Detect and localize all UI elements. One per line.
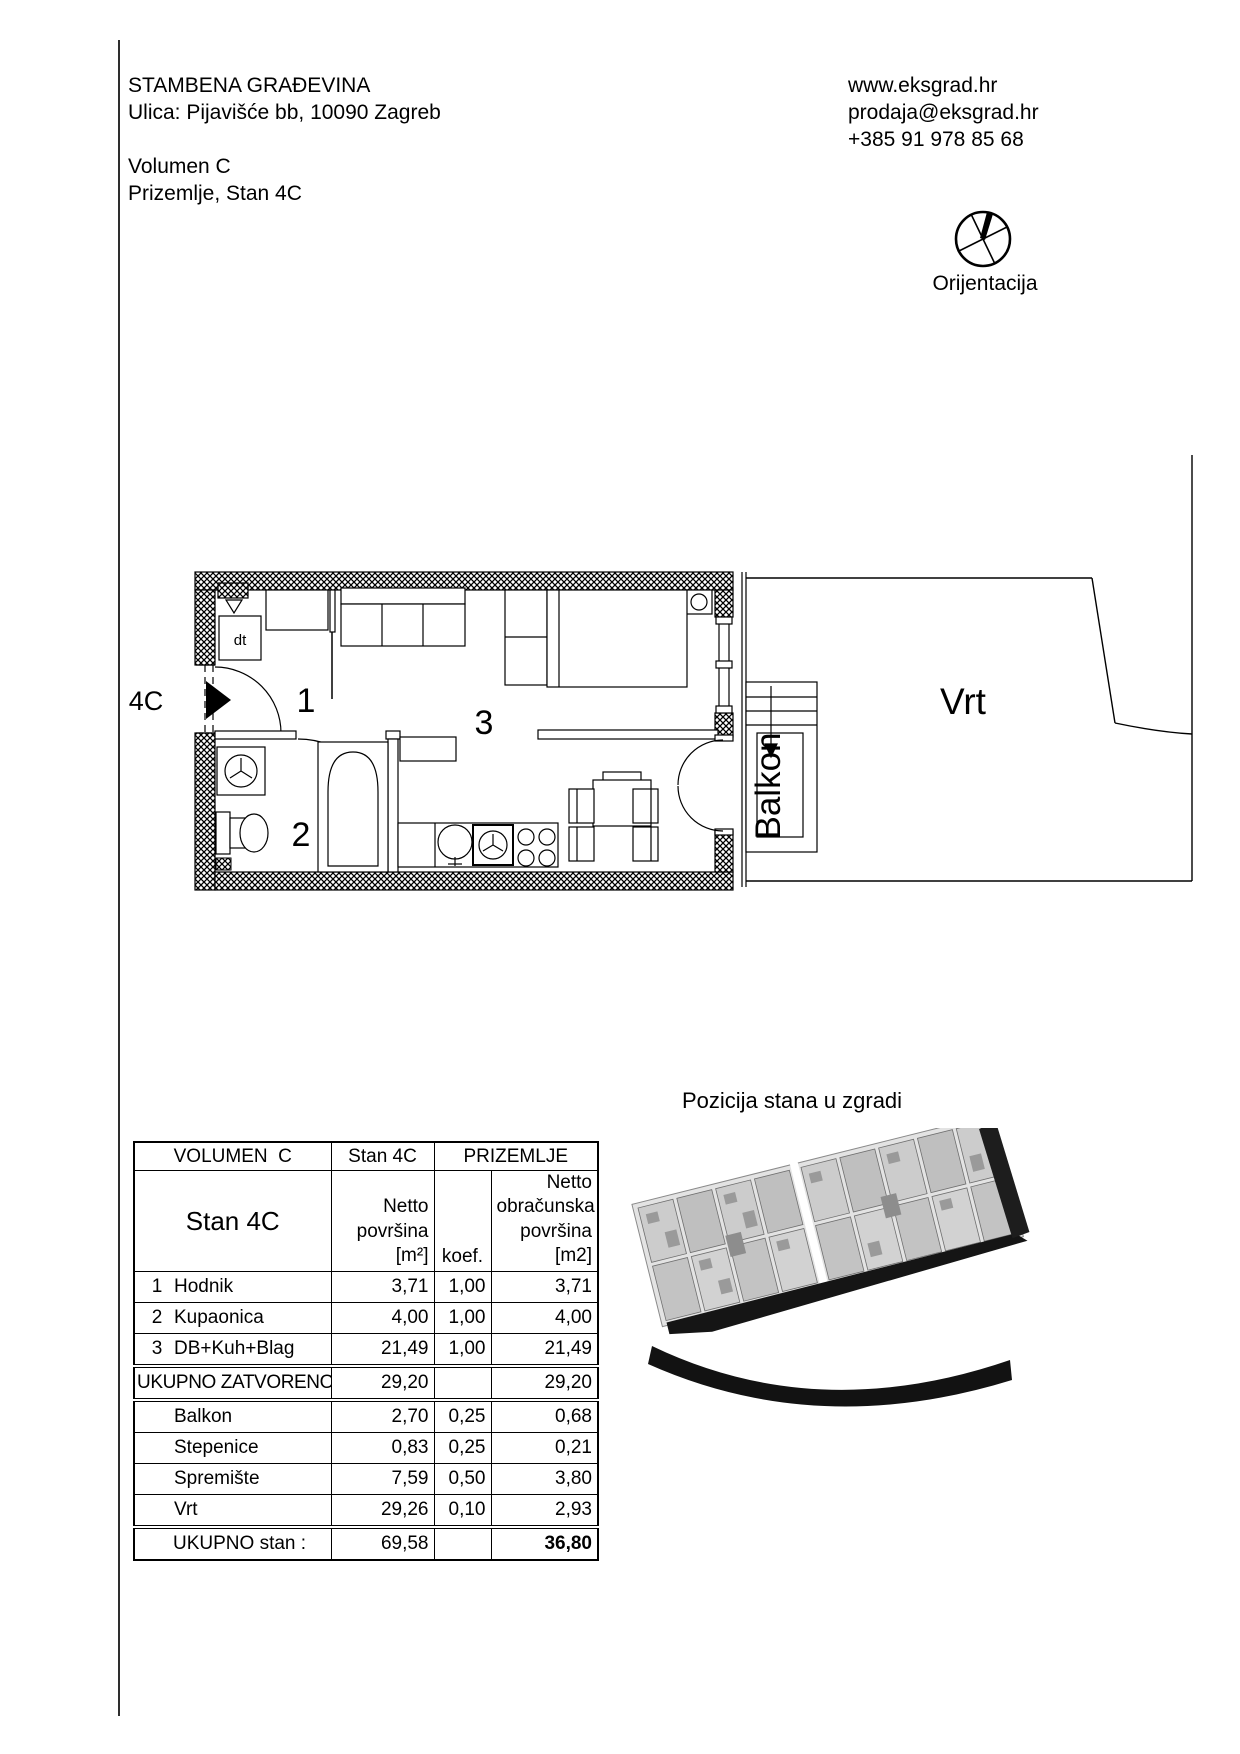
dining-table [569, 772, 658, 861]
orientation-compass-icon [950, 206, 1016, 272]
header-floor: PRIZEMLJE [434, 1142, 598, 1171]
kitchen-counter [398, 823, 558, 867]
sofa [341, 588, 465, 646]
bed [547, 590, 687, 687]
unit-label: 4C [129, 686, 164, 716]
total-row: UKUPNO stan : 69,58 36,80 [134, 1527, 598, 1560]
garden-label: Vrt [940, 681, 987, 722]
building-site-plan [618, 1128, 1038, 1438]
room-number-hall: 1 [297, 682, 316, 720]
page-title: STAMBENA GRAĐEVINA [128, 72, 441, 99]
table-row: 2Kupaonica 4,00 1,00 4,00 [134, 1303, 598, 1334]
toilet [216, 812, 268, 854]
floor-apartment-line: Prizemlje, Stan 4C [128, 180, 441, 207]
partition-pole [330, 590, 335, 699]
entrance-arrow-icon [206, 681, 231, 719]
room-number-living: 3 [475, 704, 494, 742]
subtotal-row: UKUPNO ZATVORENO : 29,20 29,20 [134, 1366, 598, 1400]
subheader-netto: Netto površina [m²] [331, 1171, 434, 1272]
table-row: Balkon 2,70 0,25 0,68 [134, 1400, 598, 1433]
website-text: www.eksgrad.hr [848, 72, 1039, 99]
header-block: STAMBENA GRAĐEVINA Ulica: Pijavišće bb, … [128, 72, 441, 207]
nightstand [505, 590, 547, 685]
low-divider-wall [538, 730, 718, 739]
orientation-label: Orijentacija [905, 272, 1065, 296]
floor-drain [216, 858, 231, 870]
cabinet [400, 737, 456, 761]
brochure-page: STAMBENA GRAĐEVINA Ulica: Pijavišće bb, … [0, 0, 1240, 1754]
bathtub [318, 742, 388, 872]
balcony-doors [678, 735, 733, 835]
header-unit: Stan 4C [331, 1142, 434, 1171]
table-row: 1Hodnik 3,71 1,00 3,71 [134, 1272, 598, 1303]
closet-label: dt [234, 632, 247, 649]
living-room-window [716, 617, 732, 713]
corner-vent [686, 590, 712, 614]
table-header-row: VOLUMEN C Stan 4C PRIZEMLJE [134, 1142, 598, 1171]
balcony-label: Balkon [749, 732, 788, 839]
volume-line: Volumen C [128, 153, 441, 180]
wardrobe [266, 590, 328, 630]
site-plan-shadow [648, 1346, 1012, 1406]
subheader-obracunska: Netto obračunska površina [m2] [491, 1171, 598, 1272]
address-line: Ulica: Pijavišće bb, 10090 Zagreb [128, 99, 441, 126]
table-row: Vrt 29,26 0,10 2,93 [134, 1495, 598, 1528]
email-text: prodaja@eksgrad.hr [848, 99, 1039, 126]
floor-plan: 4C dt [100, 430, 1240, 910]
room-number-bathroom: 2 [292, 816, 311, 854]
position-section-title: Pozicija stana u zgradi [662, 1088, 922, 1114]
table-row: Stepenice 0,83 0,25 0,21 [134, 1433, 598, 1464]
washing-machine [217, 747, 265, 795]
subheader-koef: koef. [434, 1171, 491, 1272]
phone-text: +385 91 978 85 68 [848, 126, 1039, 153]
table-subheader-row: Stan 4C Netto površina [m²] koef. Netto … [134, 1171, 598, 1272]
table-row: 3DB+Kuh+Blag 21,49 1,00 21,49 [134, 1334, 598, 1367]
header-volume: VOLUMEN C [134, 1142, 331, 1171]
area-table: VOLUMEN C Stan 4C PRIZEMLJE Stan 4C Nett… [133, 1141, 599, 1561]
contact-block: www.eksgrad.hr prodaja@eksgrad.hr +385 9… [848, 72, 1039, 153]
subheader-unit: Stan 4C [134, 1171, 331, 1272]
table-row: Spremište 7,59 0,50 3,80 [134, 1464, 598, 1495]
